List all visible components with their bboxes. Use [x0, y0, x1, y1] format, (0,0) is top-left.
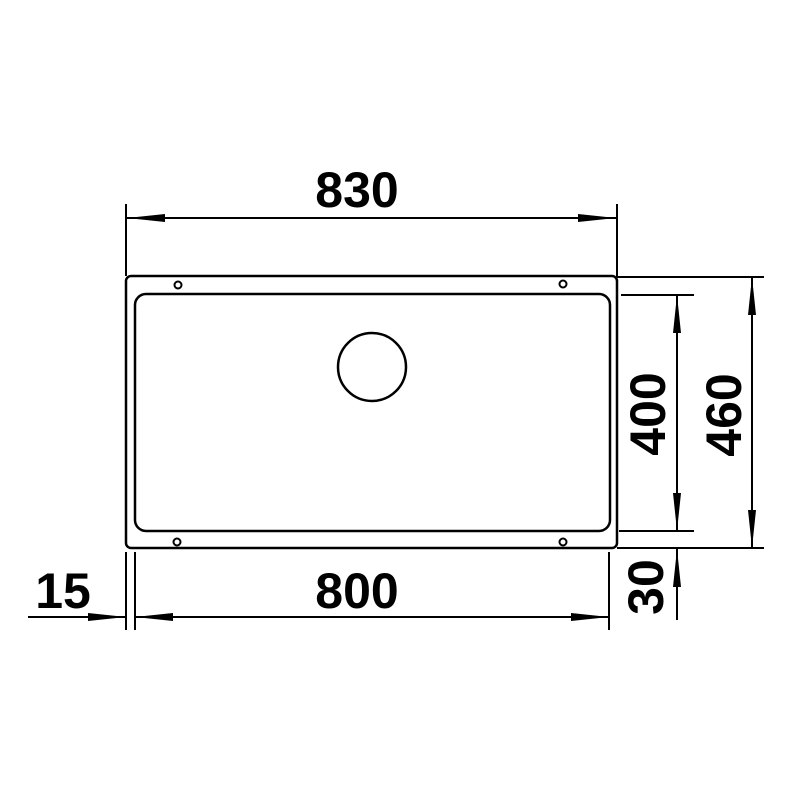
dim-label-flange-offset-bottom: 30	[618, 559, 674, 615]
sink-dimension-diagram: 830 400 460 30	[0, 0, 800, 800]
sink-body	[126, 276, 617, 548]
dim-label-overall-width: 830	[315, 162, 398, 218]
dim-label-bowl-depth: 400	[620, 372, 676, 455]
sink-flange-outline	[126, 276, 617, 548]
arrowhead-right-icon	[578, 214, 616, 222]
mounting-hole-top-right	[560, 281, 567, 288]
mounting-hole-bottom-right	[560, 539, 567, 546]
dim-label-flange-offset-left: 15	[35, 563, 91, 619]
arrowhead-up-icon	[673, 549, 681, 587]
dimension-bottom-group: 15 800	[28, 552, 609, 630]
dimension-bowl-depth: 400	[619, 295, 694, 531]
sink-bowl-outline	[135, 294, 610, 531]
dim-label-bowl-width: 800	[315, 563, 398, 619]
arrowhead-up-icon	[673, 295, 681, 333]
arrowhead-left-icon	[127, 214, 165, 222]
mounting-hole-top-left	[175, 282, 182, 289]
dim-label-overall-depth: 460	[696, 373, 752, 456]
arrowhead-right-icon	[571, 613, 609, 621]
dimension-bowl-width: 800	[135, 563, 609, 621]
drain-hole	[338, 333, 406, 401]
dimension-overall-width: 830	[126, 162, 617, 277]
arrowhead-up-icon	[748, 277, 756, 315]
mounting-hole-bottom-left	[174, 539, 181, 546]
arrowhead-right-icon	[88, 613, 126, 621]
arrowhead-left-icon	[135, 613, 173, 621]
arrowhead-down-icon	[673, 493, 681, 531]
dimension-flange-offset-bottom: 30	[618, 548, 681, 620]
arrowhead-down-icon	[748, 510, 756, 548]
dimension-flange-offset-left: 15	[28, 563, 126, 621]
technical-drawing-canvas: 830 400 460 30	[0, 0, 800, 800]
